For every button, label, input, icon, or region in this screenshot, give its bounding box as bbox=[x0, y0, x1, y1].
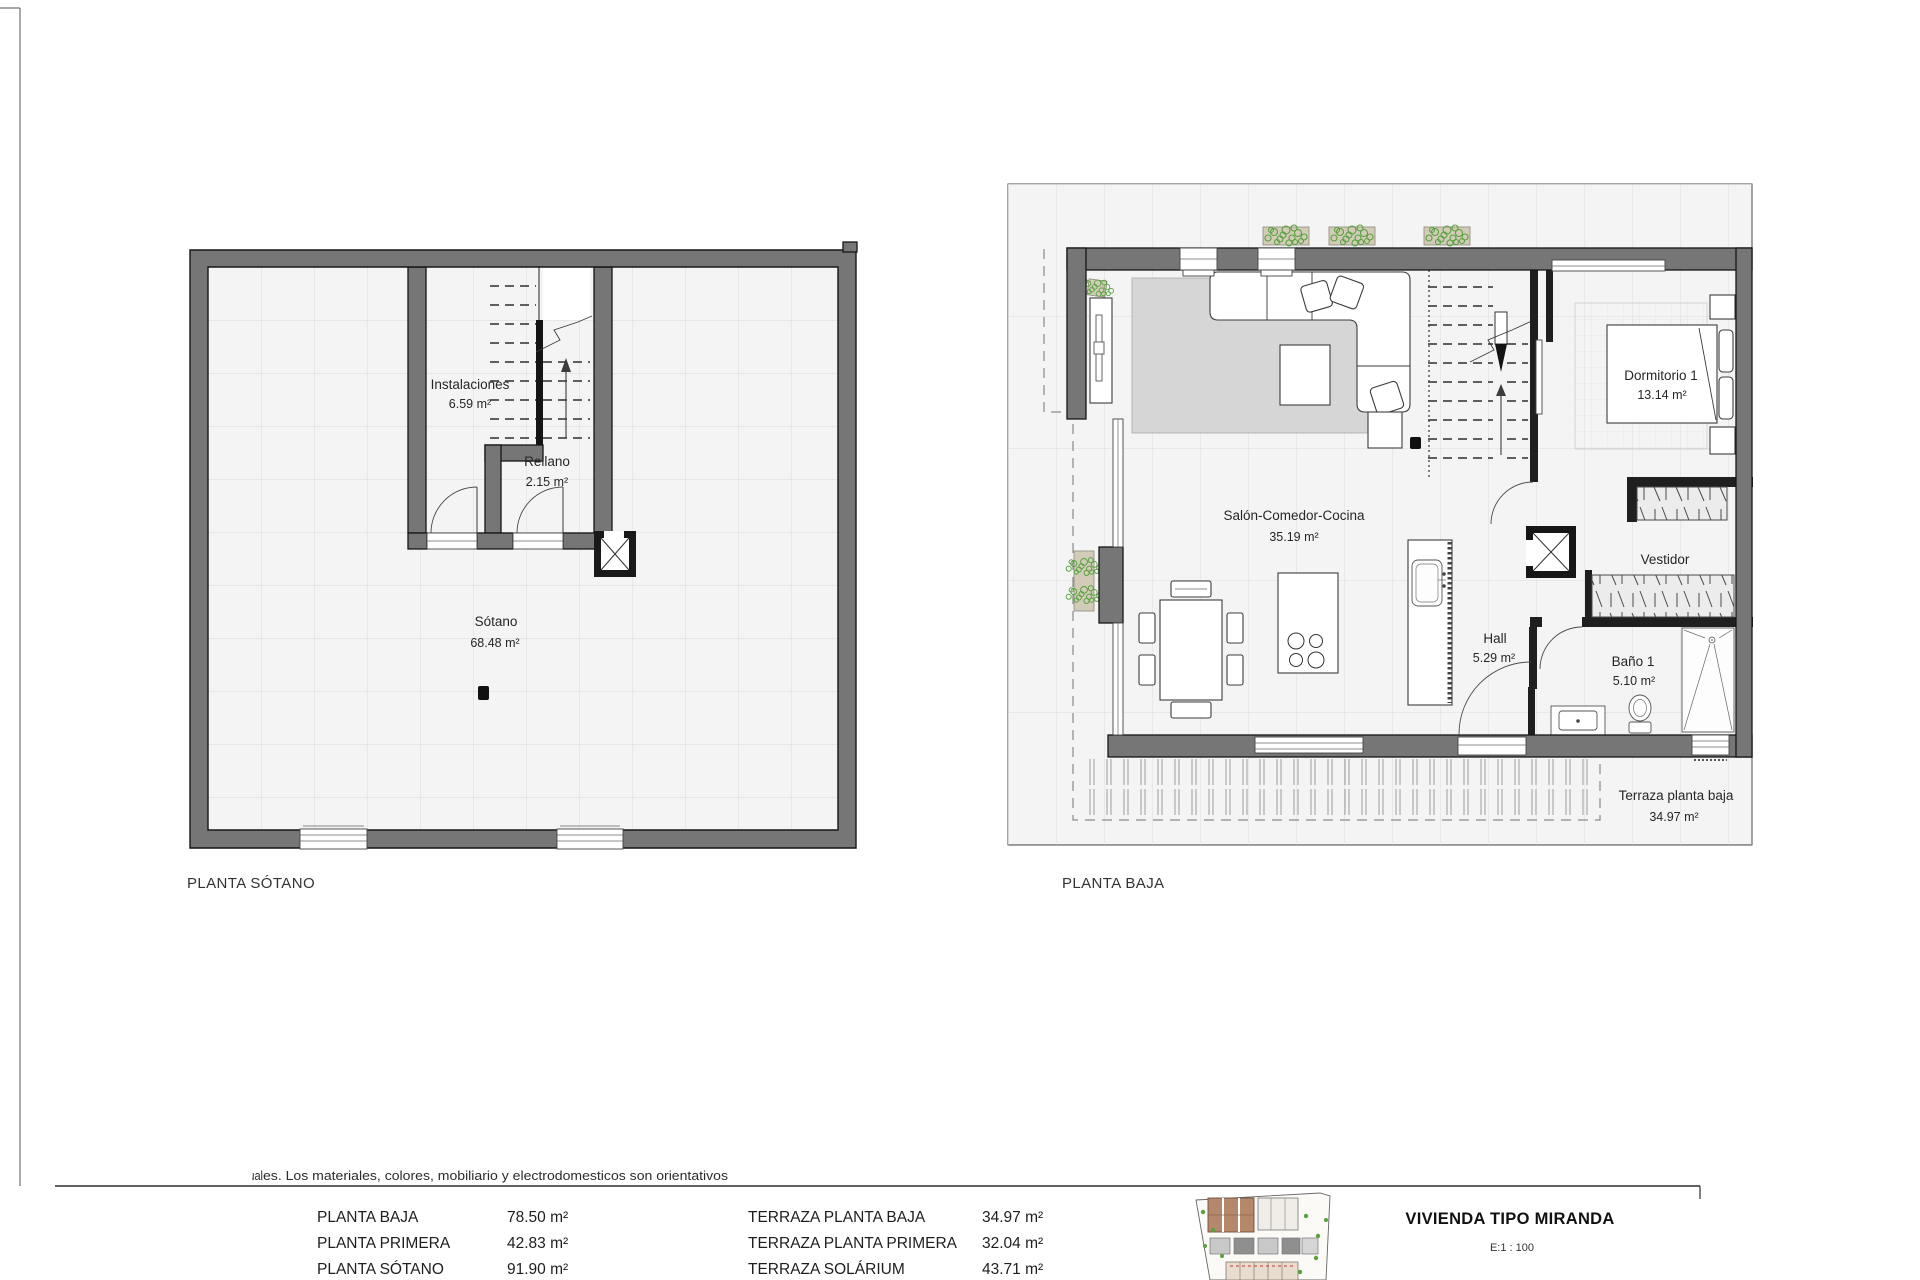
room-label-vestidor: Vestidor bbox=[1641, 552, 1690, 567]
vanity-sink-icon bbox=[1551, 706, 1605, 735]
room-label-salon: Salón-Comedor-Cocina bbox=[1223, 508, 1365, 523]
room-label-hall: Hall bbox=[1483, 631, 1506, 646]
room-area-terraza: 34.97 m² bbox=[1649, 810, 1698, 824]
nightstand bbox=[1710, 295, 1735, 319]
disclaimer-occluder bbox=[50, 1148, 252, 1184]
stair-newel bbox=[1495, 312, 1507, 344]
surface-row-label: TERRAZA PLANTA PRIMERA bbox=[748, 1235, 958, 1252]
room-area-rellano: 2.15 m² bbox=[526, 475, 568, 489]
toilet-icon bbox=[1629, 695, 1651, 737]
terrace-decking bbox=[1086, 757, 1598, 818]
disclaimer-text: es. Los materiales, colores, mobiliario … bbox=[263, 1169, 728, 1183]
site-highlighted-building bbox=[1208, 1198, 1254, 1232]
surface-row-label: PLANTA PRIMERA bbox=[317, 1235, 451, 1252]
coffee-table bbox=[1280, 345, 1330, 405]
room-label-rellano: Rellano bbox=[524, 454, 570, 469]
surface-row-label: PLANTA SÓTANO bbox=[317, 1261, 444, 1278]
surface-row-value: 34.97 m² bbox=[982, 1209, 1043, 1226]
dormitorio-glazing bbox=[1552, 260, 1665, 271]
room-area-hall: 5.29 m² bbox=[1473, 651, 1515, 665]
plan-sotano-title: PLANTA SÓTANO bbox=[187, 875, 315, 892]
shower-icon bbox=[1682, 628, 1734, 732]
surface-row-label: TERRAZA PLANTA BAJA bbox=[748, 1209, 926, 1226]
kitchen-sink-icon bbox=[1412, 560, 1446, 606]
entry-threshold bbox=[1458, 737, 1526, 755]
room-area-instalaciones: 6.59 m² bbox=[449, 397, 491, 411]
plan-baja: Salón-Comedor-Cocina 35.19 m² Dormitorio… bbox=[1008, 184, 1753, 892]
baja-elevator-icon bbox=[1526, 526, 1576, 578]
kitchen-counter bbox=[1408, 540, 1452, 705]
surface-row-label: TERRAZA SOLÁRIUM bbox=[748, 1261, 905, 1278]
living-room-furniture bbox=[1090, 272, 1410, 448]
surface-row-value: 43.71 m² bbox=[982, 1261, 1043, 1278]
sotano-column bbox=[478, 686, 489, 700]
bedroom-sliding-door bbox=[1536, 340, 1542, 414]
room-area-bano1: 5.10 m² bbox=[1613, 674, 1655, 688]
scale-label: E:1 : 100 bbox=[1490, 1242, 1534, 1254]
plan-baja-title: PLANTA BAJA bbox=[1062, 875, 1165, 892]
site-plan-thumbnail bbox=[1196, 1193, 1330, 1280]
drawing-canvas: Instalaciones 6.59 m² Rellano 2.15 m² Só… bbox=[0, 0, 1920, 1280]
surface-row-value: 42.83 m² bbox=[507, 1235, 568, 1252]
room-label-sotano: Sótano bbox=[475, 614, 518, 629]
surface-row-label: PLANTA BAJA bbox=[317, 1209, 419, 1226]
sotano-window-2 bbox=[557, 826, 623, 849]
baja-window-1 bbox=[1180, 248, 1217, 276]
stair-rail bbox=[536, 320, 543, 447]
bottom-glazing bbox=[1255, 737, 1363, 753]
room-label-terraza: Terraza planta baja bbox=[1619, 788, 1734, 803]
baja-column bbox=[1410, 437, 1421, 449]
side-table bbox=[1368, 412, 1402, 448]
pillow bbox=[1719, 377, 1733, 419]
entry-door-leaf bbox=[1528, 687, 1535, 735]
project-title: VIVIENDA TIPO MIRANDA bbox=[1405, 1210, 1614, 1228]
room-label-bano1: Baño 1 bbox=[1612, 654, 1655, 669]
surface-table: PLANTA BAJA 78.50 m² PLANTA PRIMERA 42.8… bbox=[317, 1209, 1043, 1278]
room-area-sotano: 68.48 m² bbox=[470, 636, 519, 650]
floorplan-sheet: Instalaciones 6.59 m² Rellano 2.15 m² Só… bbox=[0, 0, 1920, 1280]
surface-row-value: 91.90 m² bbox=[507, 1261, 568, 1278]
surface-row-value: 78.50 m² bbox=[507, 1209, 568, 1226]
surface-row-value: 32.04 m² bbox=[982, 1235, 1043, 1252]
plan-sotano: Instalaciones 6.59 m² Rellano 2.15 m² Só… bbox=[187, 242, 857, 892]
pillow bbox=[1719, 330, 1733, 372]
nightstand bbox=[1710, 427, 1735, 454]
sotano-window-1 bbox=[300, 826, 367, 849]
room-label-dormitorio1: Dormitorio 1 bbox=[1624, 368, 1698, 383]
room-label-instalaciones: Instalaciones bbox=[431, 377, 510, 392]
kitchen-island bbox=[1278, 573, 1338, 673]
room-area-salon: 35.19 m² bbox=[1269, 530, 1318, 544]
dining-table bbox=[1160, 600, 1222, 700]
sotano-elevator-icon bbox=[594, 531, 636, 577]
tv-sideboard bbox=[1090, 298, 1112, 403]
baja-window-2 bbox=[1258, 248, 1295, 276]
room-area-dormitorio1: 13.14 m² bbox=[1637, 388, 1686, 402]
